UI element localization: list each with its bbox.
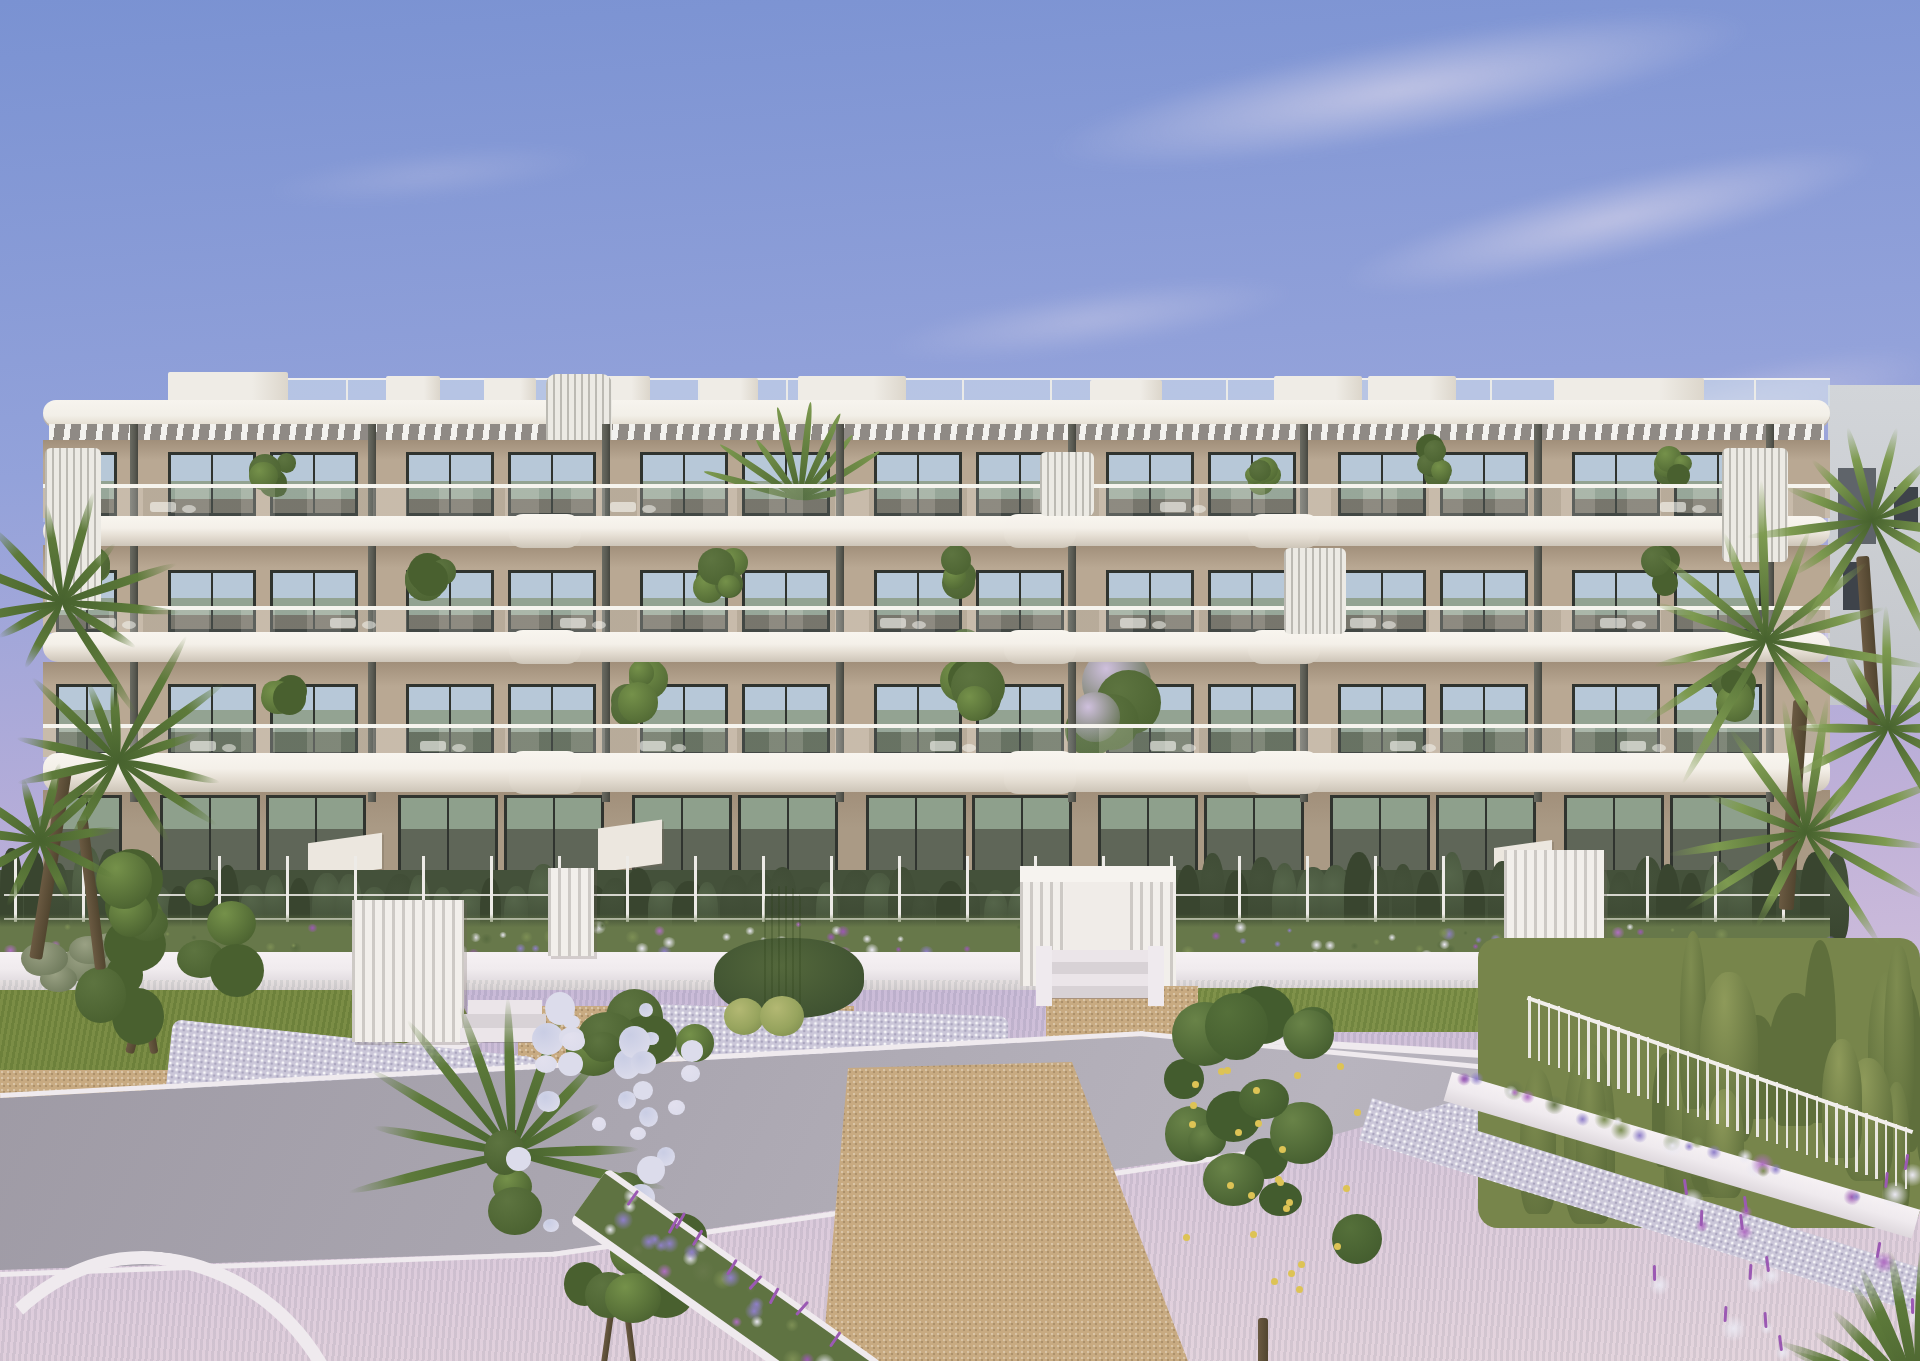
slope-railing-bar <box>1806 1093 1809 1155</box>
flower-clump <box>1648 1275 1672 1295</box>
salvia-spike <box>1652 1265 1655 1281</box>
lemon-trunk <box>1258 1318 1268 1361</box>
slope-railing-bar <box>1825 1100 1828 1162</box>
slope-flower-clump <box>1630 1126 1650 1145</box>
lilac-blossom <box>506 1147 531 1171</box>
slope-railing-bar <box>1796 1089 1799 1151</box>
lemon-fruit <box>1253 1087 1260 1094</box>
lilac-blossom <box>562 1032 585 1052</box>
slope-railing-bar <box>1597 1020 1600 1082</box>
lemon-fruit <box>1298 1261 1305 1268</box>
lilac-blossom <box>535 1055 557 1073</box>
slope-railing-bar <box>1647 1037 1650 1099</box>
slope-railing-bar <box>1865 1113 1868 1175</box>
lemon-fruit <box>1218 1068 1225 1075</box>
lemon-fruit <box>1337 1063 1344 1070</box>
salvia-spike <box>1911 1298 1914 1314</box>
lemon-fruit <box>1235 1129 1242 1136</box>
lemon-foliage <box>1283 1010 1334 1059</box>
flower-clump <box>1735 1224 1754 1240</box>
slope-railing-bar <box>1617 1027 1620 1089</box>
slope-railing-bar <box>1697 1055 1700 1117</box>
flower-clump <box>1761 1266 1783 1285</box>
lilac-blossom <box>630 1127 646 1140</box>
lemon-foliage <box>1332 1214 1382 1264</box>
palm-frond <box>1795 723 1888 733</box>
lemon-fruit <box>1343 1185 1350 1192</box>
slope-railing-bar <box>1687 1051 1690 1113</box>
slope-railing-bar <box>1627 1031 1630 1093</box>
slope-railing-bar <box>1756 1075 1759 1137</box>
garden-tree-foliage <box>96 852 152 909</box>
salvia-spike <box>1700 1210 1704 1226</box>
lemon-fruit <box>1224 1067 1231 1074</box>
lilac-blossom <box>618 1091 636 1109</box>
slope-railing-bar <box>1716 1062 1719 1124</box>
slope-railing-bar <box>1677 1048 1680 1110</box>
slope-railing-bar <box>1657 1041 1660 1103</box>
trees-and-plants <box>0 0 1920 1361</box>
lawn-edging-curve <box>0 1230 382 1361</box>
slope-railing-bar <box>1746 1072 1749 1134</box>
lilac-blossom <box>681 1065 701 1082</box>
slope-railing-bar <box>1786 1086 1789 1148</box>
lilac-blossom <box>543 1219 559 1233</box>
salvia-spike <box>1723 1306 1727 1322</box>
flower-clump <box>1679 1189 1705 1211</box>
slope-railing-bar <box>1776 1082 1779 1144</box>
lilac-blossom <box>537 1091 560 1113</box>
lemon-fruit <box>1183 1234 1190 1241</box>
lilac-blossom <box>639 1107 658 1127</box>
slope-railing-bar <box>1726 1065 1729 1127</box>
lemon-fruit <box>1255 1120 1262 1127</box>
lemon-fruit <box>1227 1182 1234 1189</box>
lilac-foliage <box>488 1187 542 1235</box>
slope-flower-clump <box>1574 1111 1592 1128</box>
lemon-foliage <box>1205 993 1267 1060</box>
lemon-fruit <box>1271 1278 1278 1285</box>
slope-railing-bar <box>1835 1103 1838 1165</box>
lilac-blossom <box>668 1100 685 1115</box>
slope-railing-bar <box>1736 1069 1739 1131</box>
slope-railing-bar <box>1528 996 1531 1058</box>
palm-frond <box>1804 775 1920 837</box>
slope-railing-bar <box>1548 1003 1551 1065</box>
lemon-fruit <box>1189 1121 1196 1128</box>
lemon-fruit <box>1294 1072 1301 1079</box>
slope-railing-bar <box>1568 1010 1571 1072</box>
slope-railing-bar <box>1578 1013 1581 1075</box>
lilac-blossom <box>558 1052 582 1076</box>
lemon-fruit <box>1354 1109 1361 1116</box>
garden-tree-foliage <box>207 901 256 946</box>
salvia-spike <box>1763 1312 1767 1328</box>
lemon-fruit <box>1248 1192 1255 1199</box>
slope-railing-bar <box>1895 1124 1898 1186</box>
slope-railing-bar <box>1855 1110 1858 1172</box>
lemon-foliage <box>1259 1182 1302 1217</box>
lemon-fruit <box>1250 1231 1257 1238</box>
slope-railing-bar <box>1607 1024 1610 1086</box>
lemon-fruit <box>1334 1243 1341 1250</box>
slope-railing-bar <box>1766 1079 1769 1141</box>
slope-railing-bar <box>1845 1106 1848 1168</box>
slope-railing-bar <box>1706 1058 1709 1120</box>
lemon-fruit <box>1288 1270 1295 1277</box>
slope-railing-bar <box>1587 1017 1590 1079</box>
lemon-fruit <box>1296 1286 1303 1293</box>
slope-railing-bar <box>1875 1117 1878 1179</box>
lilac-blossom <box>631 1051 657 1074</box>
slope-railing-bar <box>1667 1044 1670 1106</box>
garden-tree-foliage <box>210 944 264 997</box>
lilac-blossom <box>681 1040 704 1062</box>
slope-railing-bar <box>1816 1096 1819 1158</box>
slope-railing-bar <box>1637 1034 1640 1096</box>
garden-tree-foliage <box>75 967 126 1022</box>
lemon-foliage <box>1203 1153 1264 1205</box>
palm-frond <box>1881 605 1892 728</box>
lilac-blossom <box>637 1156 665 1184</box>
slope-railing-bar <box>1538 999 1541 1061</box>
slope-railing-bar <box>1558 1006 1561 1068</box>
garden-tree-foliage <box>185 879 215 906</box>
lilac-blossom <box>592 1117 606 1131</box>
architectural-render-scene <box>0 0 1920 1361</box>
